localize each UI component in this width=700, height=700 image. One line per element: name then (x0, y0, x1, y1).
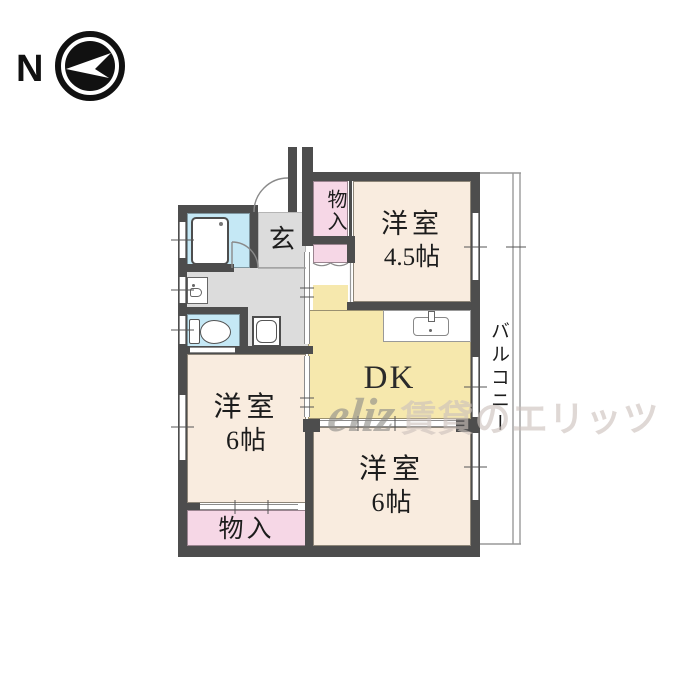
watermark-text: 賃貸のエリッツ (401, 390, 660, 442)
wall-pipe-bar-left (288, 147, 297, 212)
wall-western45-bottom (347, 302, 480, 310)
wall-closet-bottom-stub (178, 503, 200, 510)
wall-bath-entrance (250, 212, 258, 268)
wall-vertical-bottom (305, 424, 313, 546)
floor-plan-canvas: N (0, 0, 700, 700)
closet-bottom-label: 物入 (187, 514, 306, 545)
wall-basin-toilet (178, 307, 248, 314)
north-label: N (16, 48, 43, 91)
toilet-tank (189, 319, 200, 344)
window (179, 395, 186, 460)
washbasin-bowl-icon (190, 288, 202, 297)
western45-name: 洋室 (353, 208, 471, 242)
closet-top-label: 物入 (315, 186, 347, 236)
wall-bath-top (178, 205, 258, 213)
wall-bottom (178, 546, 480, 557)
western6-bottom-label: 洋室 6帖 (313, 452, 471, 520)
dk-floor-upper (313, 285, 348, 310)
western6-bottom-name: 洋室 (313, 452, 471, 487)
watermark-logo: eliz (325, 388, 397, 443)
wall-toilet-right (240, 314, 248, 348)
kitchen-faucet-icon (428, 311, 435, 322)
western45-label: 洋室 4.5帖 (353, 208, 471, 273)
western6-bottom-size: 6帖 (313, 487, 471, 520)
window (472, 433, 479, 500)
window (179, 222, 186, 258)
entrance-label: 玄 (258, 224, 306, 257)
western6-left-name: 洋室 (187, 390, 306, 425)
north-compass-icon (52, 28, 128, 104)
closet-folding-door (313, 263, 348, 266)
bathtub (191, 217, 229, 265)
wall-closet45-thin (349, 181, 352, 238)
sliding-door (304, 252, 310, 344)
watermark: eliz 賃貸のエリッツ (328, 388, 660, 443)
sliding-door (200, 504, 298, 510)
window (472, 213, 479, 280)
bathtub-faucet-icon (219, 222, 223, 226)
closet-top-lower-floor (313, 244, 348, 263)
washbasin-faucet-icon (192, 284, 195, 287)
western45-size: 4.5帖 (353, 242, 471, 273)
wall-top (303, 172, 480, 181)
washer-pan-inner (256, 320, 277, 343)
window (179, 277, 186, 303)
kitchen-drain-icon (429, 329, 432, 332)
sliding-door (190, 347, 235, 353)
western6-left-size: 6帖 (187, 425, 306, 458)
western6-left-label: 洋室 6帖 (187, 390, 306, 458)
wall-bath-bottom (178, 264, 234, 272)
entrance-door-arc (254, 178, 288, 212)
window (179, 316, 186, 344)
